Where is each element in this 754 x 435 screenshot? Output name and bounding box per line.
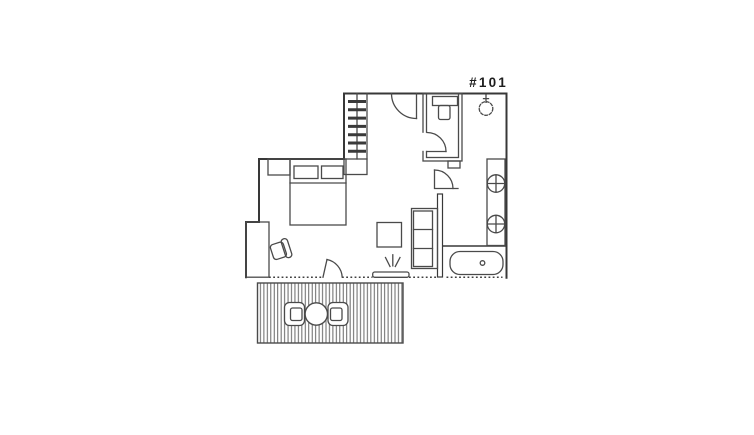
nightstand (268, 159, 290, 175)
ceiling-light-circle (479, 102, 493, 116)
deck (258, 283, 404, 343)
desk-area (246, 222, 293, 277)
desk (246, 222, 269, 277)
floorplan-drawing: #101 (0, 0, 754, 435)
ladder-base-cabinet (344, 159, 367, 175)
sofa-outer (412, 209, 438, 269)
balcony-door-swing (327, 260, 342, 278)
sofa-seat (414, 211, 433, 267)
ceiling-light (479, 95, 493, 115)
wc-door-opening (422, 133, 429, 151)
kitchen-counter (487, 159, 505, 246)
outer-wall (344, 94, 507, 278)
balcony-door (323, 260, 342, 278)
tv-signal-rays (386, 255, 401, 267)
loft-ladder (344, 94, 367, 175)
bath-door-leaf (435, 170, 459, 189)
bath-door-swing (435, 170, 454, 189)
drain-icon (480, 261, 485, 266)
bed (268, 159, 346, 225)
tv-icon (373, 272, 409, 277)
wc-door (427, 133, 446, 152)
bathtub (450, 252, 503, 275)
wc-door-swing (427, 133, 446, 152)
pillow-left (294, 166, 318, 179)
deck-chair-right-seat (331, 308, 343, 321)
furniture (246, 94, 505, 278)
deck-table (305, 303, 327, 325)
sofa-cushion-dividers (414, 230, 433, 249)
unit-number-label: #101 (469, 75, 508, 90)
wc-room (422, 94, 462, 169)
floorplan-canvas: #101 (0, 0, 754, 435)
entry-door (392, 94, 417, 119)
hall-wall-strip (438, 194, 443, 277)
entry-door-swing (392, 94, 417, 119)
ladder-rungs (350, 102, 365, 152)
wc-inner-wall (427, 94, 459, 158)
toilet-tank (433, 97, 458, 106)
pillow-right (322, 166, 344, 179)
bathtub-body (450, 252, 503, 275)
toilet-bowl (439, 106, 451, 120)
ceiling-light-mount (484, 95, 489, 102)
coffee-table (377, 223, 402, 248)
deck-chair-right (328, 303, 348, 326)
desk-chair (269, 238, 293, 262)
wc-step (448, 161, 460, 168)
deck-chair-left-seat (291, 308, 303, 321)
living-area (373, 209, 438, 278)
balcony-door-leaf (323, 260, 327, 278)
bath-door (435, 170, 459, 189)
deck-chair-left (285, 303, 305, 326)
